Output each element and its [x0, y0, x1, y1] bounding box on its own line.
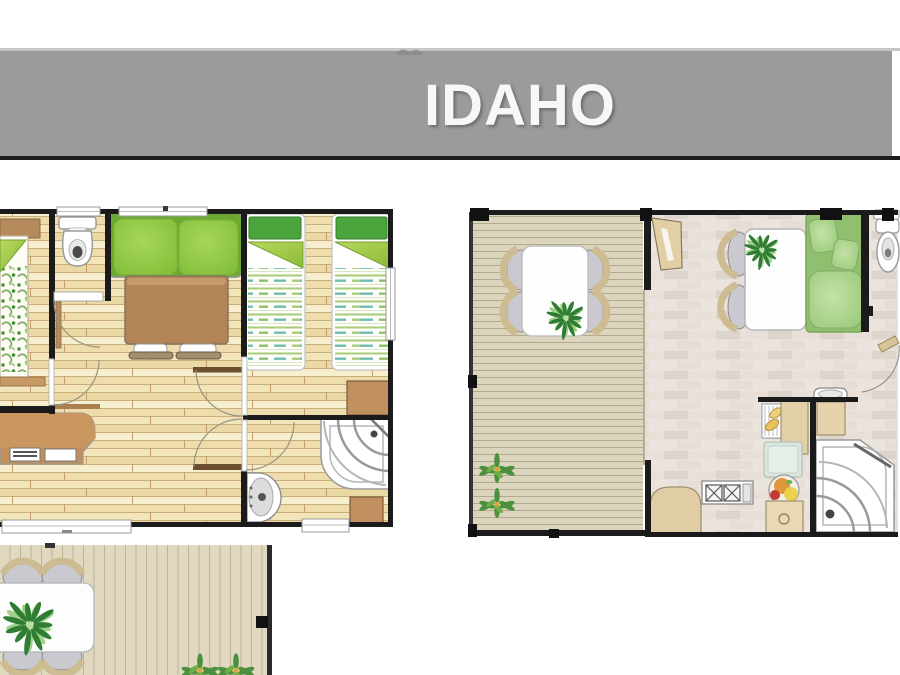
svg-text:IDAHO: IDAHO [424, 73, 616, 138]
